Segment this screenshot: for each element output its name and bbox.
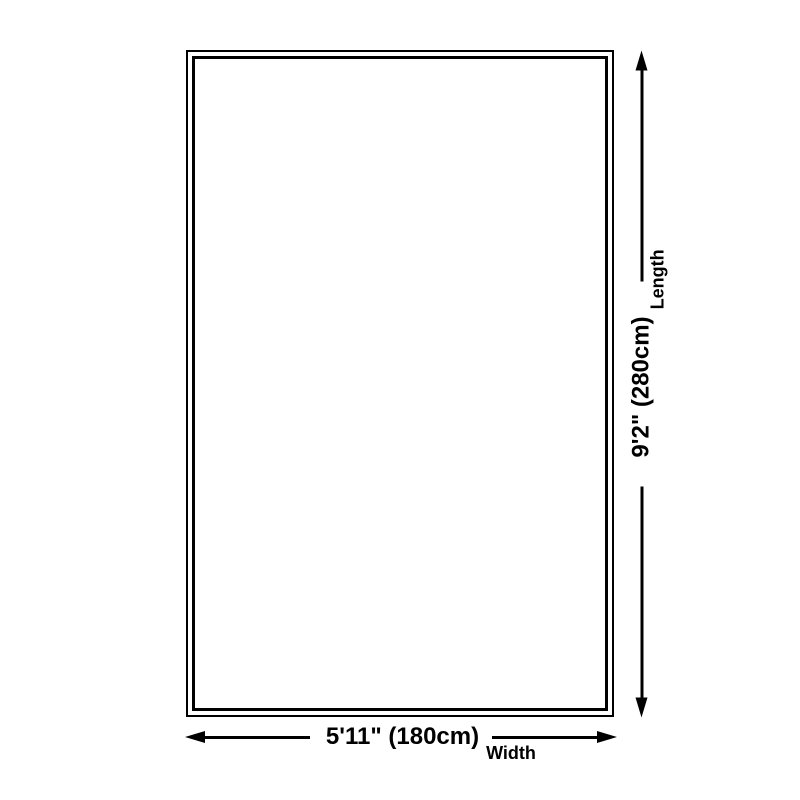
length-dimension: 9'2" (280cm) Length [610,51,674,718]
length-dimension-label: 9'2" (280cm) Length [627,316,657,457]
length-arrowhead-bottom-icon [636,698,648,718]
width-label: Width [486,744,536,762]
width-dimension: 5'11" (180cm) Width [185,705,617,769]
width-dimension-label: 5'11" (180cm) Width [326,722,479,752]
length-arrow-line-top [640,70,643,281]
rug-size-diagram: 9'2" (280cm) Length 5'11" (180cm) Width [0,0,800,800]
rug-outline [186,50,614,717]
width-arrowhead-right-icon [597,731,617,743]
length-label: Length [649,249,667,309]
width-value: 5'11" (180cm) [326,723,479,750]
rug-inner-border [192,56,608,711]
length-value: 9'2" (280cm) [628,316,655,457]
width-arrow-line-left [205,736,310,739]
length-arrow-line-bottom [640,487,643,698]
length-arrowhead-top-icon [636,50,648,70]
width-arrowhead-left-icon [185,731,205,743]
width-arrow-line-right [492,736,597,739]
